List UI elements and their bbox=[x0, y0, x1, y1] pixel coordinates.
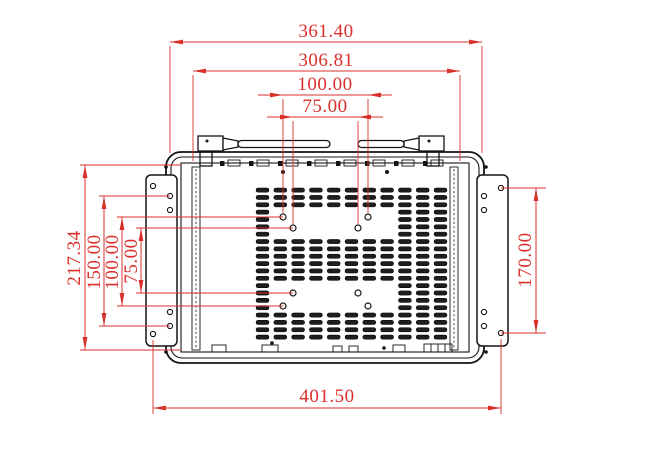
drawing-canvas: 361.40 306.81 100.00 75.00 217.34 150.00… bbox=[0, 0, 650, 449]
dim-label-217-34: 217.34 bbox=[64, 230, 85, 285]
bottom-cutouts bbox=[212, 341, 452, 352]
screw bbox=[484, 350, 488, 354]
dimension-drawing: 361.40 306.81 100.00 75.00 217.34 150.00… bbox=[0, 0, 650, 449]
screw bbox=[385, 170, 389, 174]
vent-slot-grid bbox=[256, 188, 447, 339]
left-hinge-strip bbox=[192, 167, 200, 350]
screw bbox=[484, 165, 488, 169]
chassis-inner-outline bbox=[171, 157, 479, 358]
dim-label-75-00-top: 75.00 bbox=[302, 96, 347, 117]
dim-vesa-width-75 bbox=[267, 115, 383, 224]
right-hinge-strip bbox=[450, 167, 458, 350]
left-mounting-bracket bbox=[146, 175, 177, 346]
screw bbox=[164, 350, 168, 354]
dim-label-170-00: 170.00 bbox=[515, 232, 536, 287]
dimension-labels: 361.40 306.81 100.00 75.00 217.34 150.00… bbox=[64, 21, 536, 407]
right-mounting-bracket bbox=[477, 175, 508, 346]
dim-label-306-81: 306.81 bbox=[298, 50, 353, 71]
monitor-rear-view bbox=[146, 136, 508, 363]
dim-label-100-00-left: 100.00 bbox=[102, 234, 123, 289]
dim-label-361-40: 361.40 bbox=[298, 21, 353, 42]
dim-label-100-00-top: 100.00 bbox=[297, 74, 352, 95]
screw bbox=[164, 165, 168, 169]
dim-label-75-00-left: 75.00 bbox=[121, 238, 142, 283]
dim-label-401-50: 401.50 bbox=[299, 386, 354, 407]
